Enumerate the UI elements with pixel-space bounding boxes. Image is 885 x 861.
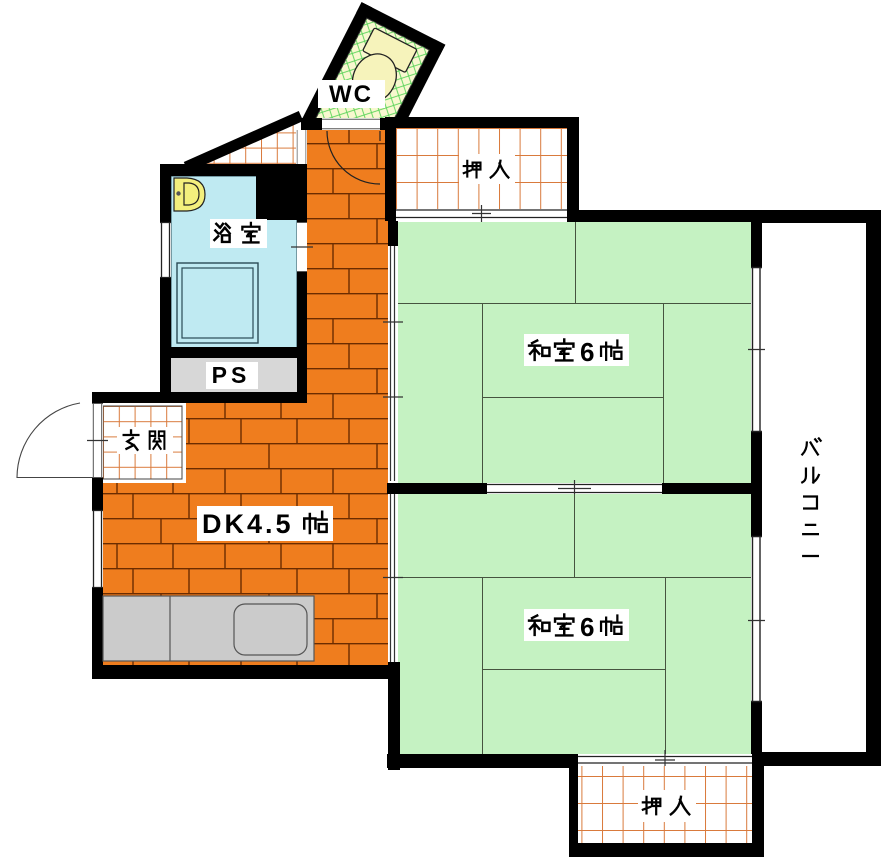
svg-text:6: 6: [580, 337, 594, 367]
svg-text:DK4.5: DK4.5: [202, 509, 294, 539]
svg-text:WC: WC: [329, 81, 373, 108]
svg-text:6: 6: [580, 612, 594, 642]
svg-text:PS: PS: [212, 362, 251, 388]
